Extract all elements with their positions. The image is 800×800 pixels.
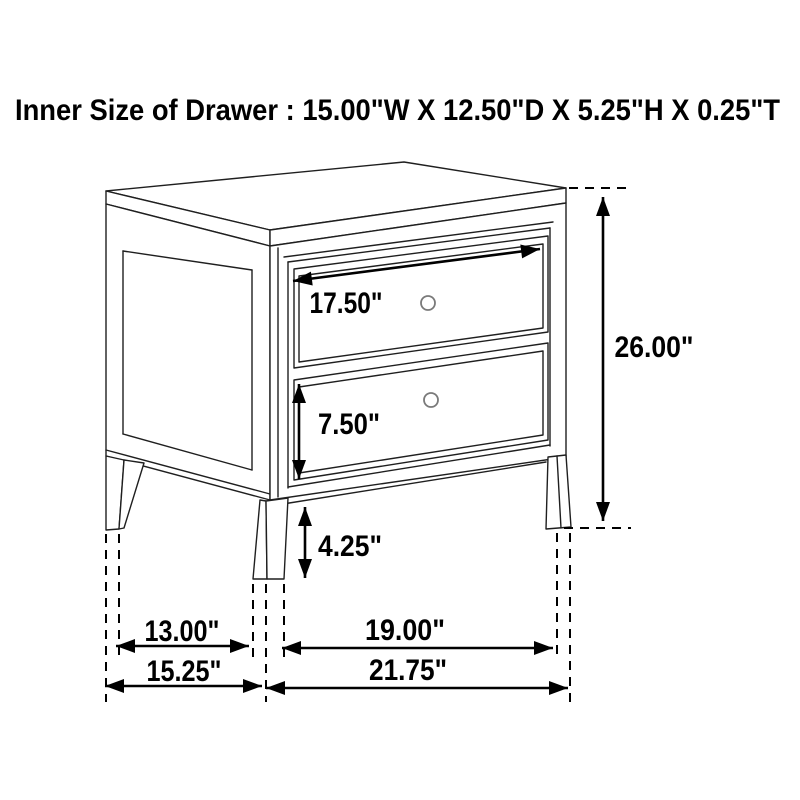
drawer-knob bbox=[424, 393, 438, 407]
dim-front-inner-span: 19.00" bbox=[282, 614, 553, 655]
page-title: Inner Size of Drawer : 15.00"W X 12.50"D… bbox=[15, 94, 780, 127]
arrowhead-icon bbox=[534, 641, 553, 655]
side-panel-face bbox=[106, 204, 270, 500]
arrowhead-icon bbox=[298, 559, 312, 578]
arrowhead-icon bbox=[596, 502, 610, 521]
drawer-knob bbox=[421, 296, 435, 310]
arrowhead-icon bbox=[596, 197, 610, 216]
dimension-diagram-page: Inner Size of Drawer : 15.00"W X 12.50"D… bbox=[0, 0, 800, 800]
dim-leg-clearance: 4.25" bbox=[298, 507, 382, 578]
dim-side-overall-depth: 15.25" bbox=[105, 655, 262, 693]
dimension-label: 19.00" bbox=[365, 614, 445, 647]
dimension-label: 26.00" bbox=[615, 331, 694, 364]
arrowhead-icon bbox=[298, 507, 312, 526]
dimension-label: 15.25" bbox=[147, 655, 222, 688]
arrowhead-icon bbox=[549, 681, 568, 695]
leg-back-left-taper bbox=[119, 460, 144, 529]
dim-side-inner-span: 13.00" bbox=[116, 615, 249, 653]
arrowhead-icon bbox=[243, 679, 262, 693]
dimension-label: 7.50" bbox=[318, 408, 380, 441]
left-side-panel bbox=[106, 204, 270, 500]
arrowhead-icon bbox=[105, 679, 124, 693]
dimension-label: 17.50" bbox=[310, 287, 383, 320]
arrowhead-icon bbox=[230, 639, 249, 653]
nightstand-drawing bbox=[106, 162, 571, 579]
dimension-label: 21.75" bbox=[369, 654, 447, 687]
leg-front-left-side bbox=[253, 500, 267, 579]
nightstand-dimension-diagram: Inner Size of Drawer : 15.00"W X 12.50"D… bbox=[0, 0, 800, 800]
dimension-label: 4.25" bbox=[318, 530, 382, 563]
dim-overall-height: 26.00" bbox=[596, 197, 694, 521]
leg-front-left bbox=[266, 498, 288, 579]
dimension-label: 13.00" bbox=[145, 615, 220, 648]
arrowhead-icon bbox=[266, 681, 285, 695]
dim-front-overall-width: 21.75" bbox=[266, 654, 568, 695]
